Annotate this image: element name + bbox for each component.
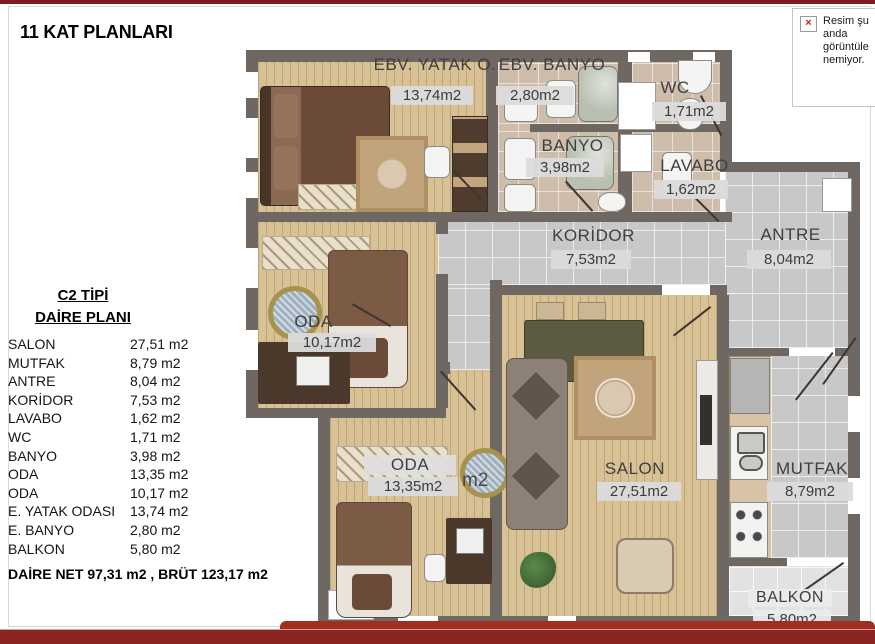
sofa-cushion xyxy=(512,372,560,420)
wall xyxy=(729,558,787,566)
legend-item: BANYO3,98 m2 xyxy=(8,447,240,466)
fridge xyxy=(730,358,770,414)
window-gap xyxy=(246,172,258,198)
stove xyxy=(730,502,768,558)
legend-room-area: 1,62 m2 xyxy=(130,409,181,428)
legend-item: ODA10,17 m2 xyxy=(8,484,240,503)
legend-list: SALON27,51 m2 MUTFAK8,79 m2 ANTRE8,04 m2… xyxy=(8,335,240,558)
bath-toilet xyxy=(598,192,626,212)
legend-item: WC1,71 m2 xyxy=(8,428,240,447)
window-gap xyxy=(848,396,860,432)
legend-room-name: WC xyxy=(8,428,130,447)
legend-item: SALON27,51 m2 xyxy=(8,335,240,354)
wall xyxy=(246,408,446,418)
room-area-kitchen: 8,79m2 xyxy=(767,482,853,501)
room-label-room13: ODA xyxy=(364,455,456,475)
room-label-master-bedroom: EBV. YATAK O. xyxy=(360,55,510,75)
master-wardrobe xyxy=(452,116,488,212)
legend-title-line2: DAİRE PLANI xyxy=(8,309,158,326)
room-area-room13: 13,35m2 xyxy=(368,477,458,496)
legend-room-name: BANYO xyxy=(8,447,130,466)
armchair xyxy=(616,538,674,594)
shaft-box xyxy=(822,178,852,212)
dining-chair xyxy=(578,302,606,320)
floor-plan-page: 11 KAT PLANLARI × Resim şu anda görüntül… xyxy=(0,0,875,644)
rug-fan-decor xyxy=(595,378,635,418)
legend-room-name: KORİDOR xyxy=(8,391,130,410)
wall xyxy=(848,162,860,626)
dining-chair xyxy=(536,302,564,320)
room13-laptop xyxy=(456,528,484,554)
room13-bed-pillow xyxy=(352,574,392,610)
page-title: 11 KAT PLANLARI xyxy=(20,22,173,43)
legend-item: MUTFAK8,79 m2 xyxy=(8,354,240,373)
legend-room-area: 1,71 m2 xyxy=(130,428,181,447)
legend-room-name: SALON xyxy=(8,335,130,354)
window-gap xyxy=(246,72,258,98)
legend-room-name: E. YATAK ODASI xyxy=(8,502,130,521)
legend-item: LAVABO1,62 m2 xyxy=(8,409,240,428)
legend-item: BALKON5,80 m2 xyxy=(8,540,240,559)
window-gap xyxy=(246,248,258,288)
master-rug xyxy=(356,136,428,212)
wall xyxy=(436,218,448,234)
window-gap xyxy=(246,330,258,370)
legend-item: ANTRE8,04 m2 xyxy=(8,372,240,391)
room-area-entry-hall: 8,04m2 xyxy=(747,250,831,269)
legend-room-area: 3,98 m2 xyxy=(130,447,181,466)
window-gap xyxy=(246,118,258,158)
legend-room-area: 2,80 m2 xyxy=(130,521,181,540)
legend-summary: DAİRE NET 97,31 m2 , BRÜT 123,17 m2 xyxy=(8,566,268,582)
shaft-box xyxy=(620,134,652,172)
room-label-wc: WC xyxy=(650,78,700,98)
wall xyxy=(717,295,729,616)
broken-image-x-icon: × xyxy=(800,16,817,32)
legend-room-name: E. BANYO xyxy=(8,521,130,540)
room-label-lavabo: LAVABO xyxy=(652,156,737,176)
kitchen-sink xyxy=(730,426,768,480)
room13-chair xyxy=(424,554,446,582)
legend-room-name: LAVABO xyxy=(8,409,130,428)
master-side-table xyxy=(424,146,450,178)
legend-room-area: 7,53 m2 xyxy=(130,391,181,410)
room-label-balcony: BALKON xyxy=(748,589,832,607)
legend-room-name: ODA xyxy=(8,484,130,503)
room-label-kitchen: MUTFAK xyxy=(766,459,858,479)
floor-kitchen xyxy=(771,356,848,558)
room-area-room10: 10,17m2 xyxy=(288,333,376,352)
legend-room-area: 13,74 m2 xyxy=(130,502,188,521)
legend-room-name: ODA xyxy=(8,465,130,484)
legend-title-line1: C2 TİPİ xyxy=(8,287,158,304)
legend-room-name: ANTRE xyxy=(8,372,130,391)
room-label-master-bath: EBV. BANYO xyxy=(492,55,612,75)
legend-item: KORİDOR7,53 m2 xyxy=(8,391,240,410)
window-gap xyxy=(628,52,650,62)
living-room-rug xyxy=(574,356,656,440)
legend-room-area: 8,79 m2 xyxy=(130,354,181,373)
sink-basin xyxy=(737,432,765,454)
room-area-master-bath: 2,80m2 xyxy=(496,86,574,105)
sofa xyxy=(506,358,568,530)
wall xyxy=(725,162,860,172)
room-area-corridor: 7,53m2 xyxy=(551,250,631,269)
legend-room-area: 27,51 m2 xyxy=(130,335,188,354)
stray-m2-label: m2 xyxy=(462,470,488,492)
wall xyxy=(729,348,789,356)
legend-room-area: 10,17 m2 xyxy=(130,484,188,503)
broken-image-placeholder: × Resim şu anda görüntüle nemiyor. xyxy=(792,8,875,107)
sink-basin xyxy=(739,455,763,471)
room10-laptop xyxy=(296,356,330,386)
room-area-wc: 1,71m2 xyxy=(652,102,726,121)
master-pillow xyxy=(274,146,298,190)
sofa-cushion xyxy=(512,452,560,500)
legend-room-area: 8,04 m2 xyxy=(130,372,181,391)
top-red-bar xyxy=(0,0,875,4)
wall xyxy=(436,274,448,408)
tv-unit xyxy=(696,360,718,480)
room-label-living-room: SALON xyxy=(596,459,674,479)
legend-item: E. YATAK ODASI13,74 m2 xyxy=(8,502,240,521)
legend-room-area: 5,80 m2 xyxy=(130,540,181,559)
room-label-entry-hall: ANTRE xyxy=(753,225,828,245)
room-label-room10: ODA xyxy=(286,312,341,332)
legend-room-name: MUTFAK xyxy=(8,354,130,373)
bottom-red-bar xyxy=(0,629,875,644)
bath-sink xyxy=(504,184,536,212)
broken-image-text: Resim şu anda görüntüle nemiyor. xyxy=(823,15,873,67)
room-area-lavabo: 1,62m2 xyxy=(654,180,728,199)
legend-room-name: BALKON xyxy=(8,540,130,559)
legend-item: E. BANYO2,80 m2 xyxy=(8,521,240,540)
wall xyxy=(530,124,620,132)
wall xyxy=(490,285,662,295)
room-label-corridor: KORİDOR xyxy=(546,226,641,246)
legend-item: ODA13,35 m2 xyxy=(8,465,240,484)
room-label-bath: BANYO xyxy=(530,136,615,156)
master-pillow xyxy=(274,94,298,138)
wall xyxy=(710,285,727,295)
room-area-living-room: 27,51m2 xyxy=(597,482,681,501)
room-area-master-bedroom: 13,74m2 xyxy=(391,86,473,105)
legend-room-area: 13,35 m2 xyxy=(130,465,188,484)
tv xyxy=(700,395,712,445)
room-area-bath: 3,98m2 xyxy=(526,158,604,177)
